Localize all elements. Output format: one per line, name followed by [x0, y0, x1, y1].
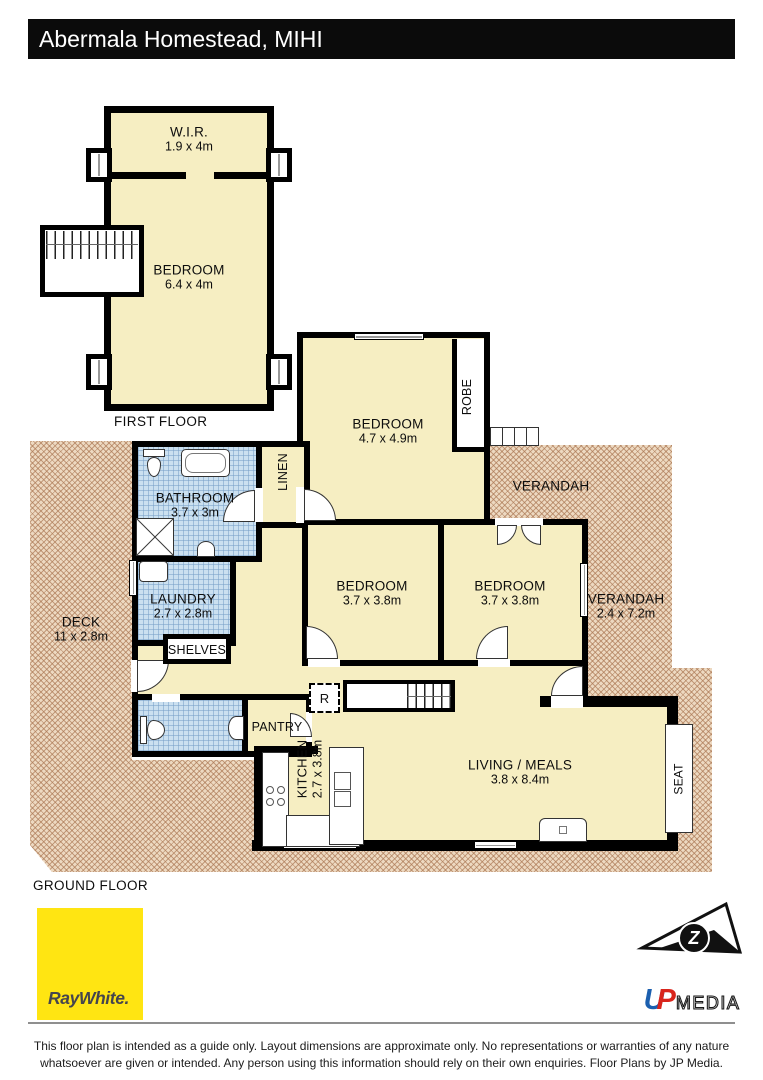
window [86, 354, 112, 390]
page-title: Abermala Homestead, MIHI [28, 19, 735, 59]
room-label-living: LIVING / MEALS 3.8 x 8.4m [468, 757, 572, 786]
stair-treads-icon [46, 231, 138, 259]
room-dims: 1.9 x 4m [165, 140, 213, 154]
wall-opening [478, 659, 510, 667]
room-dims: 2.7 x 2.8m [150, 607, 216, 621]
room-name: VERANDAH [513, 478, 590, 493]
room-dims: 3.7 x 3.8m [336, 594, 407, 608]
jp-p: P [657, 984, 676, 1016]
shelves-label: SHELVES [168, 643, 226, 657]
room-label-deck: DECK 11 x 2.8m [54, 614, 108, 643]
fridge-label: R [320, 691, 329, 706]
jp-media-wordmark: UPMEDIA [628, 984, 756, 1017]
steps-icon [489, 427, 539, 446]
room-dims: 2.7 x 3.8m [310, 740, 324, 798]
room-dims: 3.7 x 3m [156, 506, 235, 520]
room-name: BEDROOM [352, 416, 423, 431]
seat-label: SEAT [672, 763, 685, 794]
window [474, 841, 517, 849]
fireplace-inner [559, 826, 567, 834]
burner-icon [277, 798, 285, 806]
disclaimer-line-2: whatsoever are given or intended. Any pe… [30, 1055, 733, 1072]
sink-icon [334, 791, 351, 807]
room-name: VERANDAH [588, 591, 665, 606]
room-name: LINEN [276, 453, 290, 491]
room-name: W.I.R. [165, 124, 213, 139]
room-label-bathroom: BATHROOM 3.7 x 3m [156, 490, 235, 519]
burner-icon [266, 798, 274, 806]
burner-icon [277, 786, 285, 794]
room-label-pantry: PANTRY [252, 720, 303, 734]
wall [111, 172, 186, 179]
shower-icon [136, 518, 174, 556]
wall-opening [255, 488, 263, 522]
room-label-verandah-right: VERANDAH 2.4 x 7.2m [588, 591, 665, 620]
window [129, 560, 137, 596]
divider-line [28, 1022, 735, 1024]
wall-opening [103, 262, 112, 292]
room-name: LIVING / MEALS [468, 757, 572, 772]
room-name: ROBE [460, 379, 474, 415]
room-name: BEDROOM [474, 578, 545, 593]
jp-logo-letter: Z [688, 928, 701, 948]
room-name: PANTRY [252, 720, 303, 734]
room-label-verandah-top: VERANDAH [513, 478, 590, 493]
ray-white-logo: RayWhite. [37, 908, 143, 1020]
jp-media-compass-icon: Z [636, 898, 752, 974]
window [86, 148, 112, 182]
room-name: SEAT [672, 763, 685, 794]
wall-opening [551, 695, 583, 708]
window [266, 148, 292, 182]
wall-opening [152, 694, 180, 702]
room-label-bedroom-right: BEDROOM 3.7 x 3.8m [474, 578, 545, 607]
jp-media-text: MEDIA [676, 993, 741, 1013]
sink-icon [334, 772, 351, 790]
room-dims: 4.7 x 4.9m [352, 432, 423, 446]
room-name: BEDROOM [336, 578, 407, 593]
disclaimer-line-1: This floor plan is intended as a guide o… [30, 1038, 733, 1055]
wall [214, 172, 267, 179]
wall-opening [308, 659, 340, 667]
room-label-robe: ROBE [460, 379, 474, 415]
room-dims: 2.4 x 7.2m [588, 607, 665, 621]
room-label-bedroom-left: BEDROOM 3.7 x 3.8m [336, 578, 407, 607]
window [354, 333, 424, 340]
room-name: LAUNDRY [150, 591, 216, 606]
toilet-icon [140, 716, 147, 744]
room-label-laundry: LAUNDRY 2.7 x 2.8m [150, 591, 216, 620]
fridge-box: R [309, 683, 340, 713]
ground-floor-caption: GROUND FLOOR [33, 878, 148, 893]
first-floor-caption: FIRST FLOOR [114, 414, 207, 429]
wall [254, 746, 262, 851]
room-name: DECK [54, 614, 108, 629]
window [266, 354, 292, 390]
room-name: SHELVES [168, 643, 226, 657]
disclaimer: This floor plan is intended as a guide o… [30, 1038, 733, 1072]
room-label-linen: LINEN [276, 453, 290, 491]
room-label-ff-bedroom: BEDROOM 6.4 x 4m [153, 262, 224, 291]
basin-icon [197, 541, 215, 557]
room-name: KITCHEN [296, 740, 311, 798]
room-dims: 3.8 x 8.4m [468, 773, 572, 787]
room-dims: 6.4 x 4m [153, 278, 224, 292]
laundry-trough-icon [139, 561, 168, 582]
room-name: BATHROOM [156, 490, 235, 505]
room-label-bedroom-main: BEDROOM 4.7 x 4.9m [352, 416, 423, 445]
floor-plan-page: Abermala Homestead, MIHI W.I.R. 1.9 x 4m… [0, 0, 763, 1080]
bathtub-inner [185, 453, 226, 473]
room-label-wir: W.I.R. 1.9 x 4m [165, 124, 213, 153]
stair-treads-icon [407, 684, 451, 708]
basin-icon [228, 716, 244, 740]
room-dims: 11 x 2.8m [54, 630, 108, 644]
room-label-kitchen: KITCHEN 2.7 x 3.8m [296, 740, 325, 798]
wall-opening [296, 487, 304, 523]
ray-white-wordmark: RayWhite. [48, 988, 129, 1009]
burner-icon [266, 786, 274, 794]
room-name: BEDROOM [153, 262, 224, 277]
room-dims: 3.7 x 3.8m [474, 594, 545, 608]
toilet-icon [143, 449, 165, 457]
